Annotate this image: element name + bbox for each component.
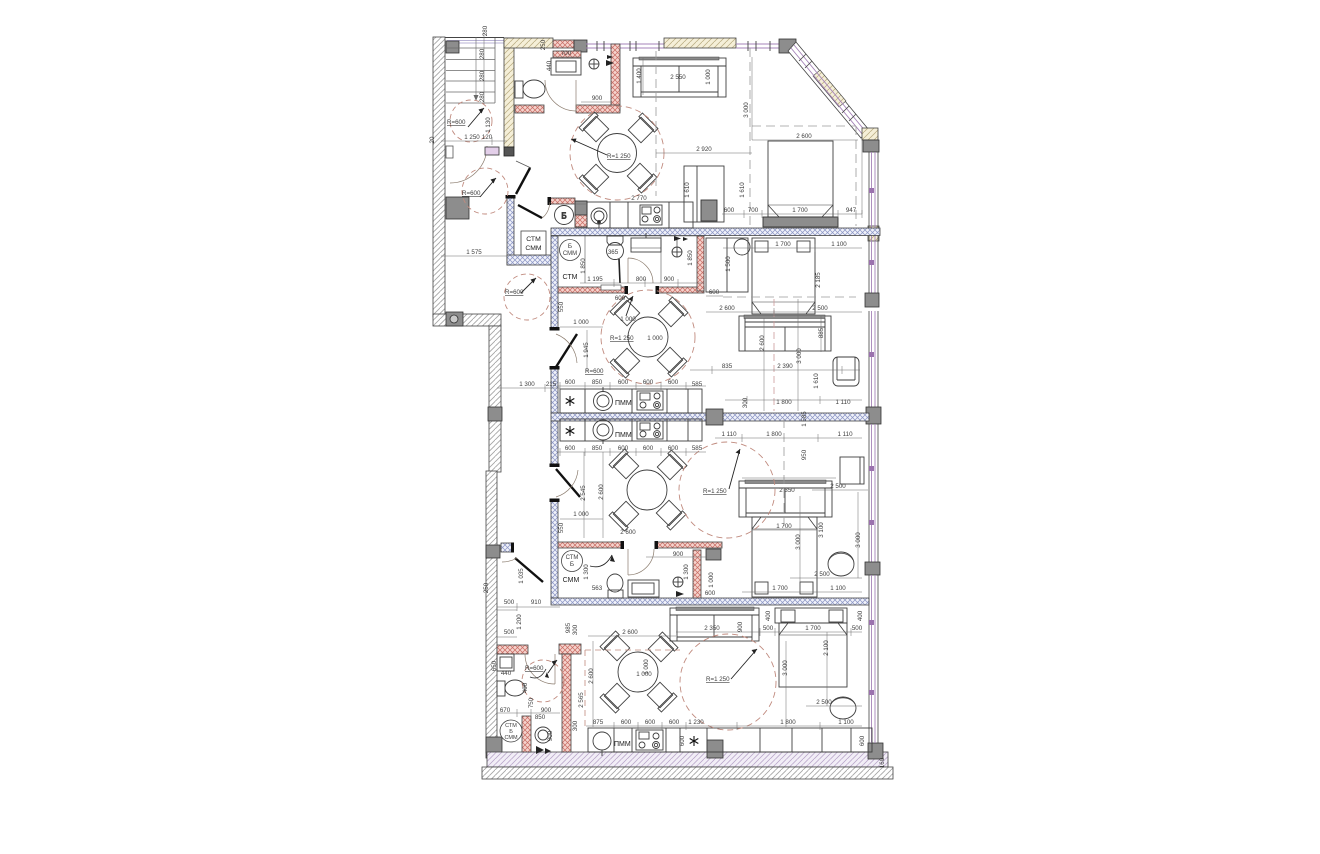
- svg-text:400: 400: [857, 610, 864, 621]
- svg-text:900: 900: [541, 707, 552, 714]
- svg-text:R=1 250: R=1 250: [706, 676, 730, 683]
- svg-text:2 500: 2 500: [812, 305, 828, 312]
- svg-text:1 100: 1 100: [838, 719, 854, 726]
- svg-text:1 400: 1 400: [636, 68, 643, 84]
- svg-text:300: 300: [742, 397, 749, 408]
- svg-text:2 600: 2 600: [622, 629, 638, 636]
- svg-text:1 130: 1 130: [485, 117, 492, 133]
- svg-text:1 850: 1 850: [580, 258, 587, 274]
- svg-text:2 550: 2 550: [670, 74, 686, 81]
- svg-text:835: 835: [722, 363, 733, 370]
- svg-text:700: 700: [748, 207, 759, 214]
- svg-text:1 300: 1 300: [583, 564, 590, 580]
- svg-text:600: 600: [645, 719, 656, 726]
- svg-text:2 500: 2 500: [830, 483, 846, 490]
- svg-text:1 300: 1 300: [683, 564, 690, 580]
- svg-text:850: 850: [535, 714, 546, 721]
- svg-text:1 195: 1 195: [587, 276, 603, 283]
- svg-text:585: 585: [692, 445, 703, 452]
- svg-text:900: 900: [592, 95, 603, 102]
- svg-text:250: 250: [540, 39, 547, 50]
- svg-text:750: 750: [528, 697, 535, 708]
- svg-text:2 350: 2 350: [779, 487, 795, 494]
- svg-text:850: 850: [592, 379, 603, 386]
- svg-text:600: 600: [679, 735, 686, 746]
- svg-text:650: 650: [491, 660, 498, 671]
- svg-text:985: 985: [565, 622, 572, 633]
- svg-text:1 800: 1 800: [766, 431, 782, 438]
- svg-text:280: 280: [479, 91, 486, 102]
- svg-text:900: 900: [664, 276, 675, 283]
- svg-text:2 545: 2 545: [580, 485, 587, 501]
- svg-text:1 585: 1 585: [801, 411, 808, 427]
- svg-text:1 000: 1 000: [647, 335, 663, 342]
- svg-text:3 000: 3 000: [743, 102, 750, 118]
- svg-text:120: 120: [482, 134, 493, 141]
- svg-text:1 700: 1 700: [805, 625, 821, 632]
- svg-text:600: 600: [705, 590, 716, 597]
- svg-text:1 300: 1 300: [519, 381, 535, 388]
- svg-text:1 800: 1 800: [780, 719, 796, 726]
- svg-text:947: 947: [846, 207, 857, 214]
- svg-text:1 800: 1 800: [776, 399, 792, 406]
- svg-text:2 565: 2 565: [578, 692, 585, 708]
- svg-text:R=600: R=600: [462, 190, 481, 197]
- svg-text:600: 600: [615, 295, 626, 302]
- svg-text:585: 585: [692, 381, 703, 388]
- svg-text:СММ: СММ: [504, 735, 517, 741]
- svg-text:550: 550: [558, 301, 565, 312]
- svg-text:885: 885: [818, 327, 825, 338]
- svg-text:Б: Б: [568, 243, 572, 250]
- svg-text:700: 700: [561, 50, 572, 57]
- svg-text:2 390: 2 390: [777, 363, 793, 370]
- svg-text:1 700: 1 700: [775, 241, 791, 248]
- svg-text:1 000: 1 000: [573, 511, 589, 518]
- svg-text:2 600: 2 600: [588, 668, 595, 684]
- svg-text:910: 910: [531, 599, 542, 606]
- svg-text:1 000: 1 000: [705, 69, 712, 85]
- svg-text:1 850: 1 850: [687, 250, 694, 266]
- svg-text:600: 600: [621, 719, 632, 726]
- svg-text:365: 365: [608, 249, 619, 256]
- svg-text:1 575: 1 575: [466, 249, 482, 256]
- svg-text:1 000: 1 000: [620, 316, 636, 323]
- svg-text:R=600: R=600: [585, 368, 604, 375]
- svg-text:20: 20: [429, 136, 436, 143]
- svg-text:2 920: 2 920: [696, 146, 712, 153]
- svg-text:875: 875: [593, 719, 604, 726]
- svg-text:500: 500: [763, 625, 774, 632]
- svg-text:1 700: 1 700: [772, 585, 788, 592]
- svg-text:280: 280: [479, 70, 486, 81]
- svg-text:3 000: 3 000: [796, 348, 803, 364]
- svg-text:1 100: 1 100: [831, 241, 847, 248]
- svg-text:R=600: R=600: [447, 119, 466, 126]
- svg-text:900: 900: [737, 621, 744, 632]
- svg-text:1 610: 1 610: [684, 182, 691, 198]
- svg-text:1 000: 1 000: [573, 319, 589, 326]
- svg-text:2 500: 2 500: [814, 571, 830, 578]
- svg-text:2 770: 2 770: [631, 195, 647, 202]
- svg-text:1 000: 1 000: [636, 671, 652, 678]
- svg-text:2 600: 2 600: [719, 305, 735, 312]
- svg-text:280: 280: [479, 48, 486, 59]
- svg-text:1 700: 1 700: [792, 207, 808, 214]
- svg-text:1 610: 1 610: [739, 182, 746, 198]
- svg-text:СТМ: СТМ: [563, 274, 578, 281]
- svg-text:2 600: 2 600: [759, 335, 766, 351]
- svg-text:1 000: 1 000: [708, 572, 715, 588]
- svg-text:R=600: R=600: [505, 289, 524, 296]
- svg-text:3 000: 3 000: [855, 532, 862, 548]
- svg-text:3 000: 3 000: [795, 534, 802, 550]
- svg-text:3 100: 3 100: [818, 522, 825, 538]
- svg-text:500: 500: [504, 599, 515, 606]
- svg-text:1 035: 1 035: [518, 568, 525, 584]
- svg-text:950: 950: [801, 449, 808, 460]
- svg-text:600: 600: [618, 379, 629, 386]
- svg-text:850: 850: [592, 445, 603, 452]
- svg-text:СММ: СММ: [563, 577, 580, 584]
- svg-text:600: 600: [643, 379, 654, 386]
- svg-text:1 250: 1 250: [464, 134, 480, 141]
- svg-text:600: 600: [724, 207, 735, 214]
- svg-text:800: 800: [636, 276, 647, 283]
- svg-text:1 110: 1 110: [721, 431, 737, 438]
- svg-text:600: 600: [565, 379, 576, 386]
- svg-text:1 110: 1 110: [835, 399, 851, 406]
- svg-text:1 945: 1 945: [583, 342, 590, 358]
- svg-text:2 100: 2 100: [823, 640, 830, 656]
- svg-text:Б: Б: [561, 212, 566, 221]
- svg-text:ПММ: ПММ: [615, 400, 632, 407]
- svg-text:2 350: 2 350: [704, 625, 720, 632]
- svg-text:1 700: 1 700: [776, 523, 792, 530]
- svg-text:СММ: СММ: [525, 245, 541, 252]
- svg-text:3 000: 3 000: [782, 660, 789, 676]
- svg-text:Б: Б: [570, 561, 574, 568]
- svg-text:СТМ: СТМ: [526, 236, 541, 243]
- svg-text:300: 300: [572, 624, 579, 635]
- svg-text:500: 500: [852, 625, 863, 632]
- svg-text:600: 600: [709, 289, 720, 296]
- svg-text:2 500: 2 500: [816, 699, 832, 706]
- svg-text:2 185: 2 185: [815, 272, 822, 288]
- svg-text:2 600: 2 600: [620, 529, 636, 536]
- svg-text:R=1 250: R=1 250: [703, 488, 727, 495]
- svg-text:900: 900: [673, 551, 684, 558]
- svg-text:2 600: 2 600: [598, 484, 605, 500]
- svg-text:563: 563: [592, 585, 603, 592]
- svg-text:1 200: 1 200: [516, 614, 523, 630]
- svg-text:215: 215: [546, 381, 557, 388]
- svg-text:СММ: СММ: [563, 251, 577, 257]
- svg-text:600: 600: [565, 445, 576, 452]
- svg-text:250: 250: [483, 582, 490, 593]
- svg-text:440: 440: [501, 670, 512, 677]
- svg-text:400: 400: [522, 682, 529, 693]
- svg-text:R=1 250: R=1 250: [610, 335, 634, 342]
- svg-text:1 610: 1 610: [813, 373, 820, 389]
- svg-text:440: 440: [546, 60, 553, 71]
- svg-text:900: 900: [547, 730, 554, 741]
- svg-text:600: 600: [643, 445, 654, 452]
- svg-text:400: 400: [765, 610, 772, 621]
- svg-text:670: 670: [500, 707, 511, 714]
- svg-text:280: 280: [482, 25, 489, 36]
- svg-text:550: 550: [558, 522, 565, 533]
- svg-text:2 600: 2 600: [796, 133, 812, 140]
- svg-text:500: 500: [504, 629, 515, 636]
- svg-text:160: 160: [879, 757, 886, 768]
- svg-text:ПММ: ПММ: [615, 432, 632, 439]
- svg-text:R=1 250: R=1 250: [607, 153, 631, 160]
- svg-text:600: 600: [668, 445, 679, 452]
- svg-text:600: 600: [859, 735, 866, 746]
- svg-text:600: 600: [668, 379, 679, 386]
- svg-text:1 110: 1 110: [837, 431, 853, 438]
- svg-text:1 500: 1 500: [725, 256, 732, 272]
- svg-text:600: 600: [618, 445, 629, 452]
- svg-text:1 100: 1 100: [830, 585, 846, 592]
- svg-text:1 230: 1 230: [688, 719, 704, 726]
- svg-text:600: 600: [669, 719, 680, 726]
- svg-text:R=600: R=600: [525, 665, 544, 672]
- svg-text:300: 300: [572, 720, 579, 731]
